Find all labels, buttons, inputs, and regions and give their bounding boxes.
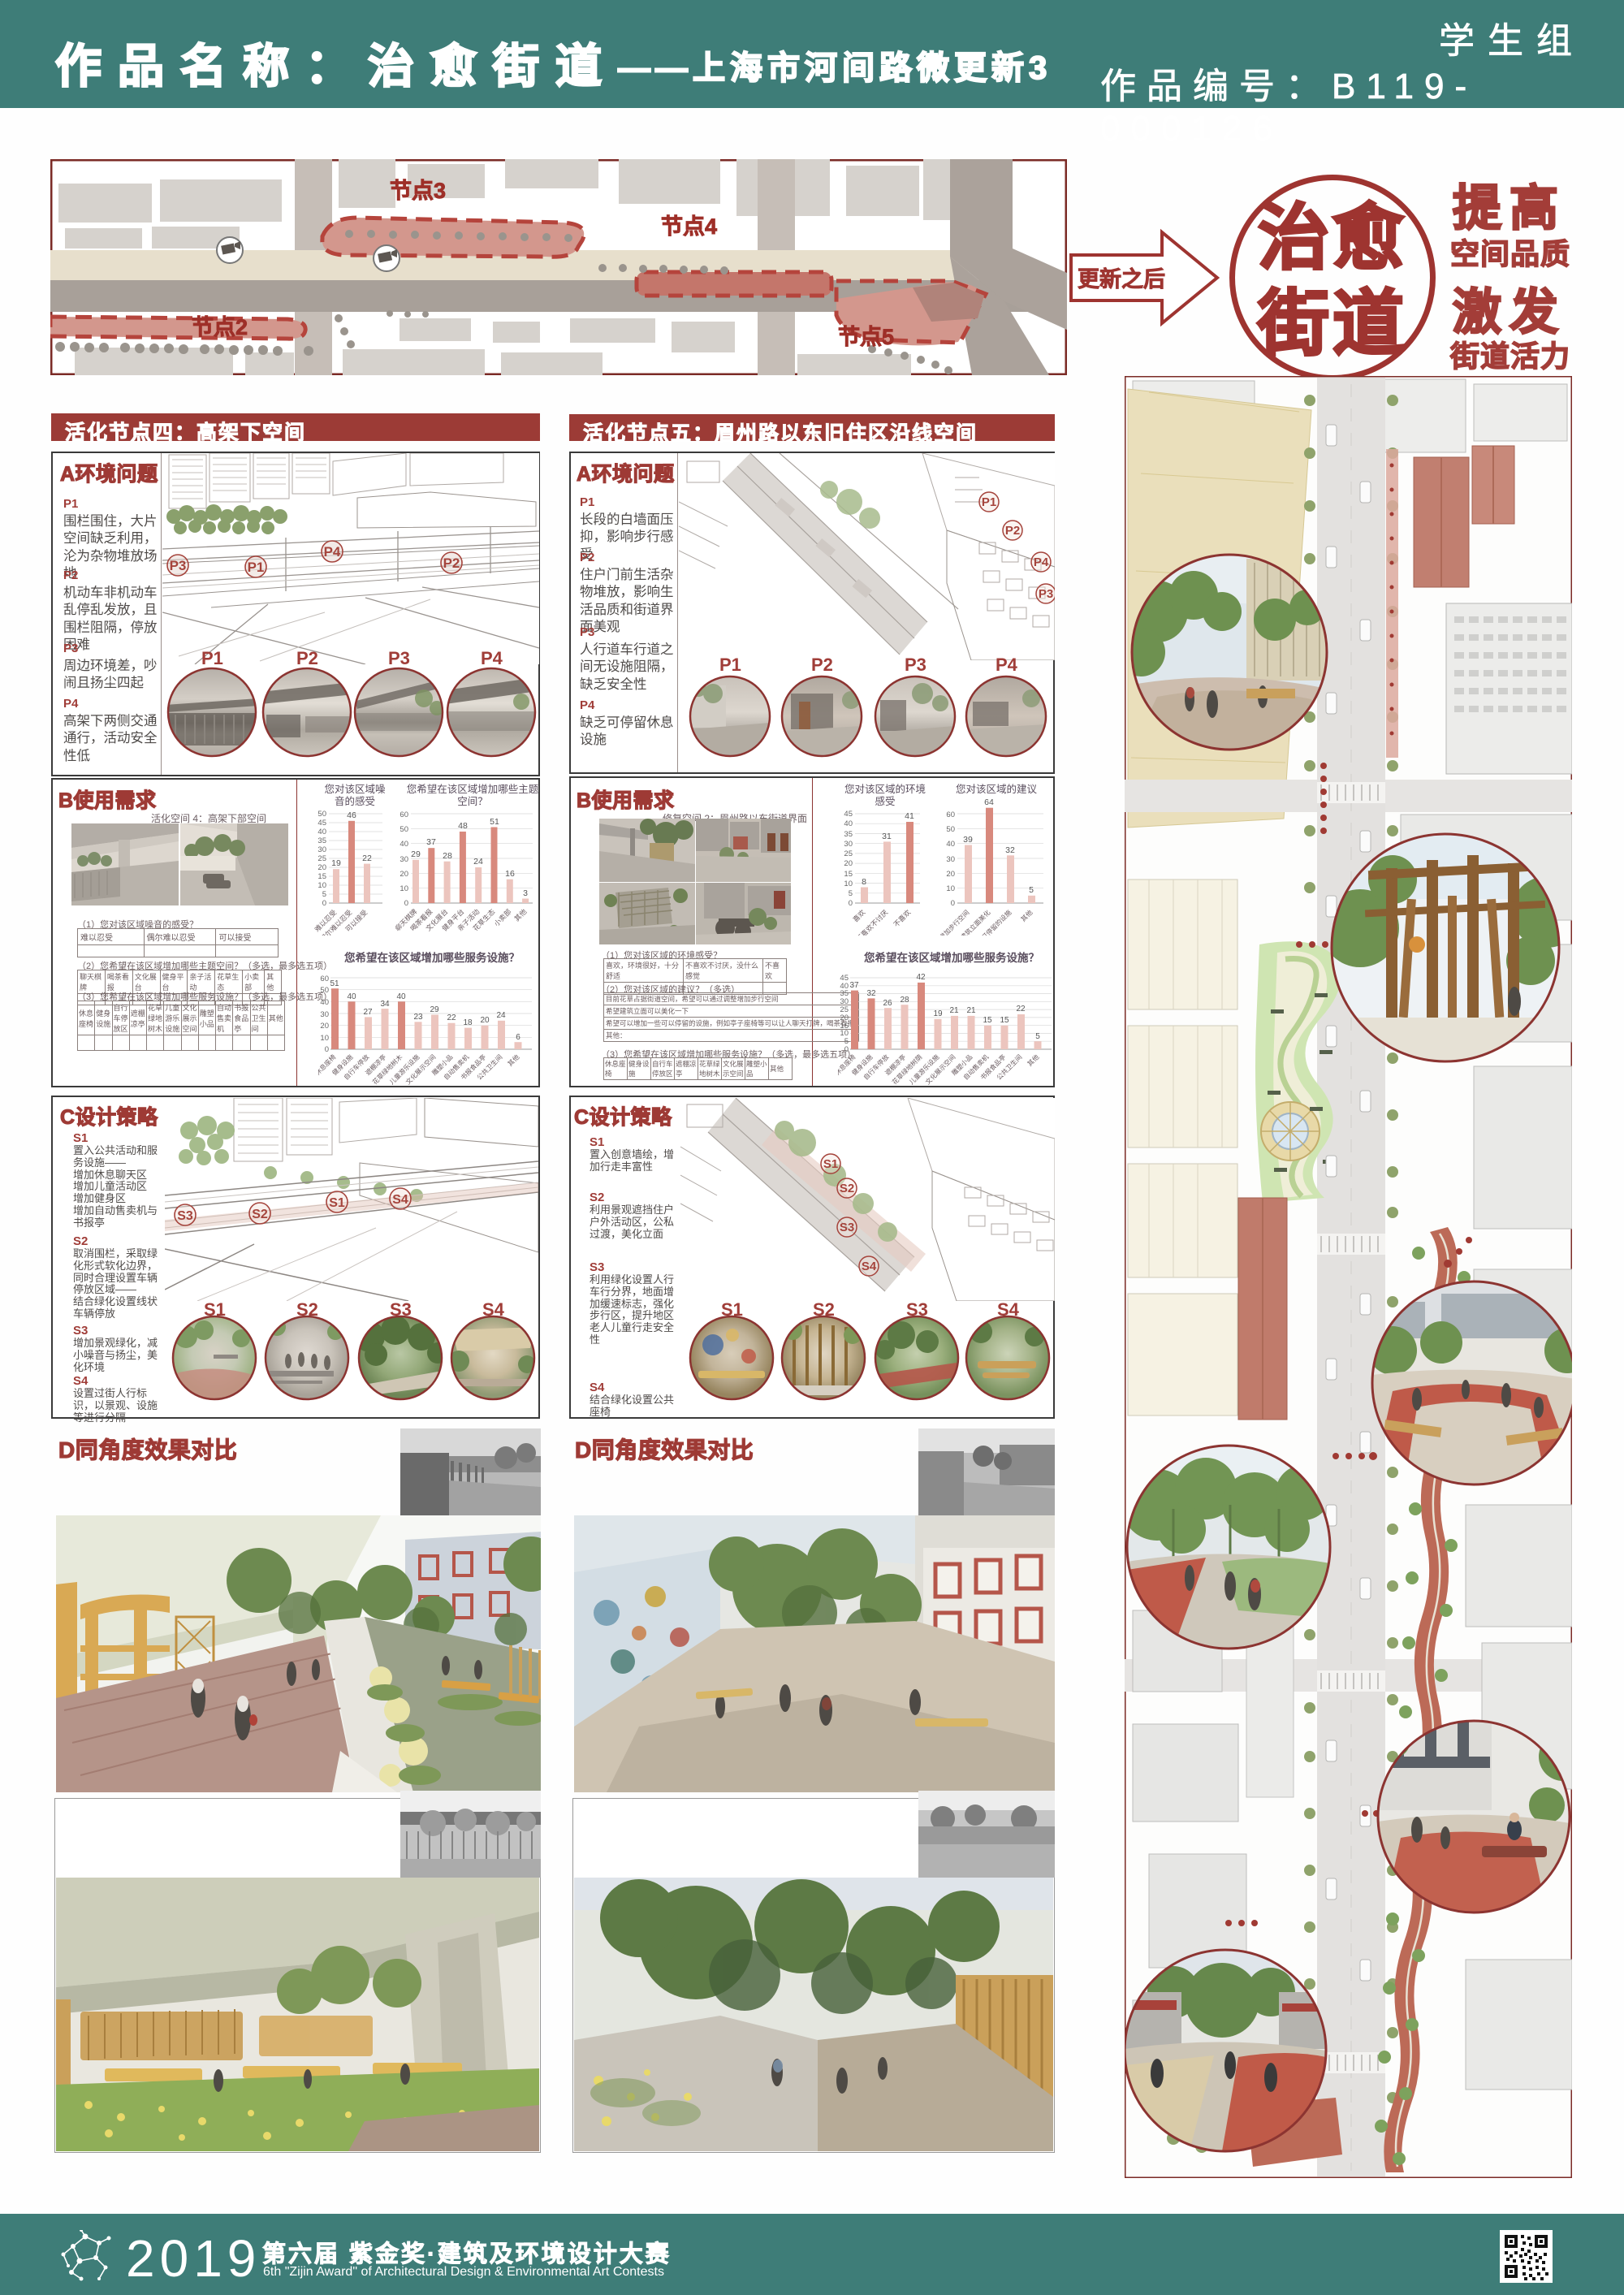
svg-text:5: 5 (322, 890, 326, 899)
svg-text:19: 19 (933, 1009, 943, 1018)
svg-text:节点2: 节点2 (192, 315, 248, 339)
svg-text:35: 35 (317, 836, 326, 845)
svg-text:您希望在该区域增加哪些服务设施？: 您希望在该区域增加哪些服务设施？ (864, 951, 1039, 964)
svg-text:25: 25 (317, 854, 326, 863)
svg-text:S2: S2 (840, 1182, 854, 1195)
svg-text:P4: P4 (324, 544, 341, 560)
svg-text:50: 50 (317, 810, 326, 819)
svg-text:空间？: 空间？ (457, 796, 488, 807)
svg-text:P4: P4 (1034, 555, 1049, 569)
svg-text:8: 8 (862, 877, 866, 887)
svg-text:20: 20 (840, 1014, 849, 1022)
svg-text:其他: 其他 (1019, 908, 1034, 923)
svg-text:20: 20 (946, 870, 955, 879)
svg-text:22: 22 (362, 854, 372, 863)
svg-text:S1: S1 (329, 1196, 345, 1210)
svg-text:21: 21 (966, 1006, 976, 1015)
svg-text:64: 64 (984, 797, 994, 807)
svg-text:0: 0 (951, 899, 955, 908)
svg-text:20: 20 (317, 863, 326, 872)
svg-text:P3: P3 (1039, 587, 1053, 601)
svg-text:21: 21 (949, 1006, 959, 1015)
svg-text:0: 0 (404, 899, 408, 908)
svg-text:S3: S3 (840, 1221, 854, 1234)
svg-text:15: 15 (983, 1016, 992, 1025)
svg-text:23: 23 (413, 1013, 423, 1022)
svg-text:20: 20 (320, 1022, 329, 1031)
svg-text:0: 0 (322, 899, 326, 908)
svg-text:37: 37 (849, 981, 859, 990)
svg-text:30: 30 (320, 1010, 329, 1019)
svg-text:39: 39 (963, 835, 973, 845)
svg-text:45: 45 (844, 810, 853, 819)
svg-text:29: 29 (430, 1005, 439, 1014)
svg-text:喜欢: 喜欢 (851, 908, 866, 923)
svg-text:S3: S3 (177, 1209, 193, 1223)
svg-text:其他: 其他 (506, 1052, 520, 1067)
svg-text:19: 19 (331, 858, 341, 868)
svg-text:60: 60 (400, 810, 408, 819)
svg-text:40: 40 (946, 840, 955, 849)
svg-text:40: 40 (840, 982, 849, 991)
svg-text:3: 3 (523, 888, 528, 898)
svg-text:小卖部: 小卖部 (492, 907, 512, 927)
svg-text:30: 30 (317, 845, 326, 854)
svg-text:不喜欢: 不喜欢 (892, 908, 912, 928)
svg-text:30: 30 (840, 997, 849, 1006)
svg-text:27: 27 (363, 1008, 373, 1017)
svg-text:25: 25 (844, 849, 853, 858)
svg-text:10: 10 (844, 880, 853, 888)
svg-text:45: 45 (317, 819, 326, 828)
svg-text:18: 18 (463, 1018, 473, 1027)
svg-text:24: 24 (496, 1011, 506, 1020)
svg-text:5: 5 (844, 1037, 849, 1046)
svg-text:31: 31 (882, 832, 892, 841)
svg-text:50: 50 (320, 986, 329, 995)
svg-text:50: 50 (400, 825, 408, 834)
svg-text:40: 40 (347, 992, 356, 1001)
svg-text:P1: P1 (248, 560, 265, 575)
svg-text:51: 51 (490, 817, 499, 827)
svg-text:P3: P3 (170, 558, 187, 573)
svg-text:0: 0 (844, 1045, 849, 1054)
svg-text:40: 40 (320, 998, 329, 1007)
svg-text:28: 28 (443, 851, 452, 861)
svg-text:5: 5 (849, 889, 853, 898)
svg-text:45: 45 (840, 974, 849, 983)
svg-text:0: 0 (849, 899, 853, 908)
svg-text:24: 24 (473, 857, 483, 867)
svg-text:S2: S2 (252, 1208, 268, 1221)
svg-text:28: 28 (900, 996, 909, 1005)
svg-text:20: 20 (844, 859, 853, 868)
svg-text:32: 32 (866, 989, 876, 998)
svg-text:40: 40 (400, 840, 408, 849)
svg-text:41: 41 (905, 811, 914, 821)
svg-text:10: 10 (320, 1034, 329, 1043)
svg-text:您对该区域的建议: 您对该区域的建议 (956, 783, 1038, 795)
svg-text:16: 16 (505, 869, 515, 879)
svg-text:您希望在该区域增加哪些服务设施？: 您希望在该区域增加哪些服务设施？ (344, 951, 520, 964)
svg-text:节点5: 节点5 (838, 325, 894, 349)
svg-text:5: 5 (1029, 885, 1034, 895)
svg-text:10: 10 (400, 884, 408, 893)
svg-text:P2: P2 (1005, 524, 1020, 538)
svg-text:46: 46 (347, 810, 356, 820)
svg-text:感受: 感受 (875, 795, 895, 807)
svg-text:22: 22 (447, 1014, 456, 1022)
svg-text:音的感受: 音的感受 (335, 795, 375, 807)
svg-text:22: 22 (1016, 1005, 1026, 1014)
svg-text:节点4: 节点4 (661, 214, 717, 239)
svg-text:P1: P1 (982, 495, 996, 509)
svg-text:6: 6 (516, 1033, 520, 1042)
svg-text:29: 29 (411, 849, 421, 859)
svg-text:10: 10 (317, 881, 326, 890)
svg-text:10: 10 (946, 884, 955, 893)
svg-text:P2: P2 (443, 555, 460, 571)
svg-text:37: 37 (426, 837, 436, 847)
svg-text:40: 40 (317, 828, 326, 836)
svg-text:节点3: 节点3 (390, 179, 446, 203)
svg-text:30: 30 (946, 855, 955, 864)
svg-text:30: 30 (844, 840, 853, 849)
svg-text:35: 35 (844, 830, 853, 839)
svg-text:15: 15 (317, 872, 326, 881)
svg-text:S1: S1 (823, 1157, 838, 1171)
svg-text:您对该区域的环境: 您对该区域的环境 (844, 783, 926, 795)
svg-text:您希望在该区域增加哪些主题: 您希望在该区域增加哪些主题 (407, 783, 539, 795)
svg-text:20: 20 (480, 1016, 490, 1025)
svg-text:15: 15 (1000, 1016, 1009, 1025)
svg-text:您对该区域噪: 您对该区域噪 (324, 783, 386, 795)
svg-text:S4: S4 (862, 1260, 877, 1273)
svg-text:40: 40 (396, 992, 406, 1001)
svg-text:S4: S4 (392, 1193, 408, 1207)
svg-text:26: 26 (883, 999, 892, 1008)
svg-text:15: 15 (840, 1022, 849, 1031)
svg-text:60: 60 (946, 810, 955, 819)
svg-text:48: 48 (458, 821, 468, 831)
svg-text:40: 40 (844, 819, 853, 828)
svg-text:25: 25 (840, 1005, 849, 1014)
svg-text:其他: 其他 (1026, 1052, 1040, 1067)
svg-text:60: 60 (320, 975, 329, 983)
svg-text:32: 32 (1005, 845, 1015, 855)
svg-text:42: 42 (916, 973, 926, 982)
svg-text:30: 30 (400, 855, 408, 864)
svg-text:20: 20 (400, 870, 408, 879)
svg-text:更新之后: 更新之后 (1078, 266, 1165, 292)
svg-text:其他: 其他 (512, 907, 528, 923)
svg-text:50: 50 (946, 825, 955, 834)
svg-text:5: 5 (1035, 1032, 1040, 1041)
svg-text:0: 0 (325, 1045, 329, 1054)
svg-text:15: 15 (844, 870, 853, 879)
svg-text:34: 34 (380, 1000, 390, 1009)
svg-text:51: 51 (330, 979, 339, 988)
